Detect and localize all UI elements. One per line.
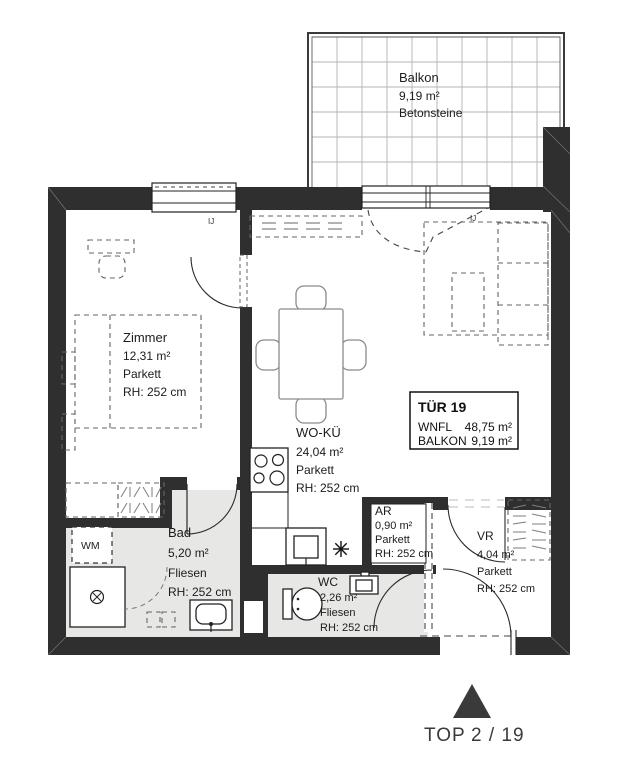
bad-area: 5,20 m²	[168, 546, 209, 560]
window-code-2: IJ	[470, 214, 476, 223]
zimmer-name: Zimmer	[123, 330, 168, 345]
wc-floor: Fliesen	[320, 607, 355, 619]
wall-kitchen-bottom	[240, 565, 436, 574]
info-box: TÜR 19 WNFL 48,75 m² BALKON 9,19 m²	[410, 392, 518, 449]
zimmer-wardrobe-left	[66, 483, 118, 517]
wall-bottom-1	[48, 637, 440, 655]
bad-height: RH: 252 cm	[168, 585, 231, 599]
room-label-balkon: Balkon 9,19 m² Betonsteine	[399, 70, 463, 120]
wall-right	[551, 210, 570, 655]
ar-area: 0,90 m²	[375, 520, 413, 532]
zimmer-floor: Parkett	[123, 367, 162, 381]
rug	[424, 222, 548, 335]
balcony-door-tilt	[426, 208, 488, 252]
dining-table	[279, 309, 343, 399]
bad-washbasin-icon	[190, 600, 232, 632]
vr-height: RH: 252 cm	[477, 583, 535, 595]
vr-name: VR	[477, 529, 494, 543]
footer-unit-number: 2 / 19	[471, 725, 525, 746]
wall-bottom-2	[516, 637, 570, 655]
toilet-icon	[283, 588, 322, 620]
zimmer-height: RH: 252 cm	[123, 385, 186, 399]
wc-height: RH: 252 cm	[320, 622, 378, 634]
stove-icon	[250, 448, 288, 492]
vr-area: 4,04 m²	[477, 549, 515, 561]
ar-name: AR	[375, 504, 392, 518]
woku-name: WO-KÜ	[296, 425, 341, 440]
kitchen-cabinet-marks	[262, 223, 342, 229]
info-row-2-label: BALKON	[418, 434, 467, 448]
woku-height: RH: 252 cm	[296, 481, 359, 495]
dining-set	[256, 286, 366, 423]
coffee-table	[452, 273, 484, 331]
balkon-name: Balkon	[399, 70, 439, 85]
sofa	[498, 223, 548, 345]
window-code-1: IJ	[208, 217, 214, 226]
vr-floor: Parkett	[477, 566, 512, 578]
shaft-niche	[244, 601, 263, 633]
chair-right	[341, 340, 366, 370]
balkon-floor: Betonsteine	[399, 106, 463, 120]
shower-icon	[70, 567, 125, 627]
wc-name: WC	[318, 575, 338, 589]
info-row-1-value: 48,75 m²	[465, 420, 512, 434]
chair-top	[296, 286, 326, 311]
balcony-door-swing	[368, 210, 426, 252]
zimmer-area: 12,31 m²	[123, 349, 170, 363]
room-label-woku: WO-KÜ 24,04 m² Parkett RH: 252 cm	[296, 425, 359, 495]
wc-area: 2,26 m²	[320, 592, 358, 604]
floor-plan: Balkon 9,19 m² Betonsteine Zimmer 12,31 …	[0, 0, 640, 759]
chair-bottom	[296, 397, 326, 423]
vr-wardrobe-hatch	[513, 505, 546, 549]
asterisk-icon	[333, 541, 349, 557]
entrance-door-arc	[443, 569, 511, 637]
wall-top-2	[236, 187, 362, 210]
bad-name: Bad	[168, 525, 191, 540]
ar-height: RH: 252 cm	[375, 548, 433, 560]
zimmer-wardrobe-hatch	[121, 487, 161, 513]
balcony-door-window	[362, 186, 490, 208]
desk	[88, 240, 134, 253]
room-label-vr: VR 4,04 m² Parkett RH: 252 cm	[477, 529, 535, 595]
room-label-ar: AR 0,90 m² Parkett RH: 252 cm	[371, 504, 433, 563]
direction-triangle-icon	[453, 684, 491, 718]
chair-left	[256, 340, 281, 370]
woku-floor: Parkett	[296, 463, 335, 477]
footer: TOP2 / 19	[424, 684, 525, 746]
ar-floor: Parkett	[375, 534, 410, 546]
zimmer-door-arc	[191, 257, 242, 308]
room-label-zimmer: Zimmer 12,31 m² Parkett RH: 252 cm	[123, 330, 186, 399]
wall-left	[48, 187, 66, 655]
kitchen-sink-icon	[286, 528, 326, 565]
info-row-1-label: WNFL	[418, 420, 452, 434]
bad-floor: Fliesen	[168, 566, 207, 580]
kitchen-cabinets	[250, 216, 362, 237]
info-box-title: TÜR 19	[418, 399, 466, 415]
wm-label: WM	[81, 540, 100, 552]
wall-zimmer-woku-b	[240, 307, 252, 573]
balkon-area: 9,19 m²	[399, 89, 440, 103]
zimmer-window	[152, 183, 236, 212]
footer-label: TOP2 / 19	[424, 725, 525, 746]
vr-door-gap-marks	[449, 500, 504, 507]
woku-area: 24,04 m²	[296, 445, 343, 459]
info-row-2-value: 9,19 m²	[471, 434, 512, 448]
zimmer-door-leaf	[240, 255, 247, 307]
footer-top-label: TOP	[424, 725, 466, 746]
desk-chair	[99, 256, 125, 278]
